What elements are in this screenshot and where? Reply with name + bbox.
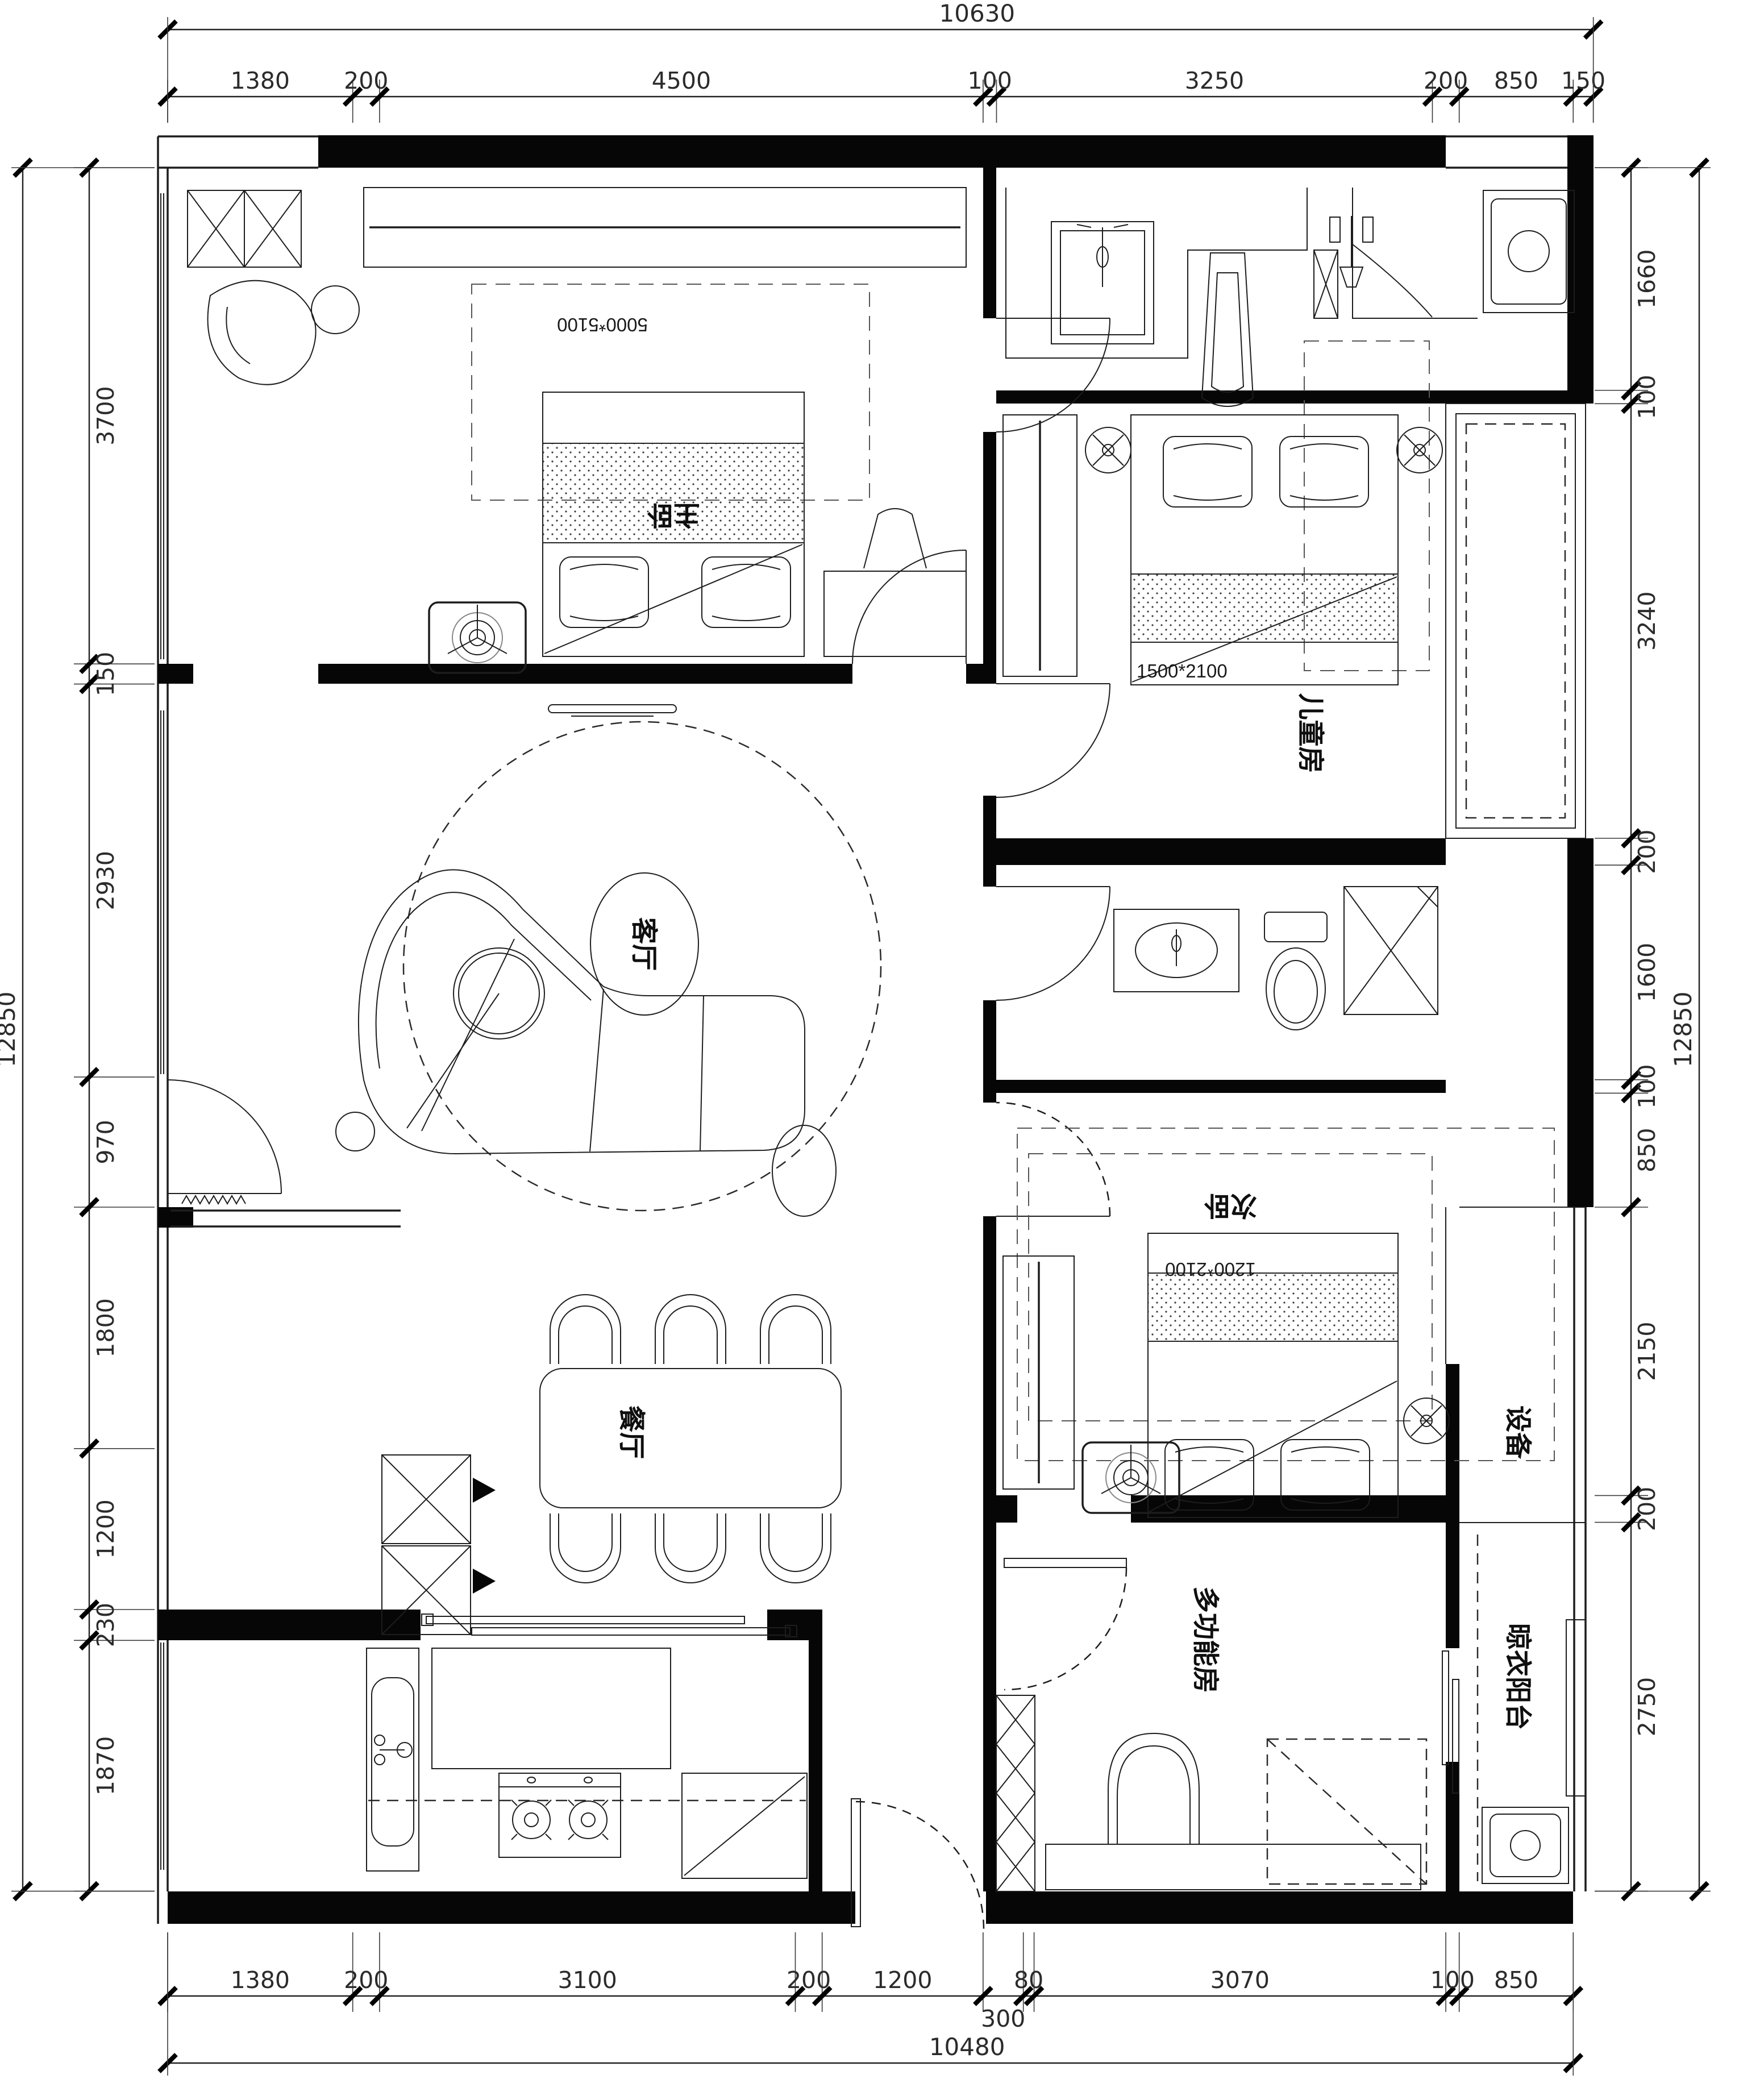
narrow-cabinet [1314, 250, 1338, 318]
kitchen [367, 1648, 807, 1878]
second-bedroom [1003, 1128, 1554, 1517]
door-kids [996, 684, 1110, 797]
balcony-washer [1482, 1807, 1569, 1883]
dimension-label: 2750 [1633, 1677, 1661, 1736]
dimension-label: 12850 [1669, 991, 1697, 1067]
label-multi-room: 多功能房 [1191, 1586, 1221, 1693]
faucet-icon [1077, 224, 1128, 287]
sliding-door-kitchen [422, 1614, 797, 1637]
dimension-label: 2150 [1633, 1322, 1661, 1381]
shower-corner [1353, 188, 1478, 318]
dimension-label: 200 [1633, 829, 1661, 874]
dimension-label: 80 [1014, 1966, 1043, 1994]
dimension-label: 200 [344, 1966, 388, 1994]
dimension-label: 300 [981, 2005, 1025, 2032]
tv-icon [548, 705, 676, 716]
dimension-label: 100 [1430, 1966, 1475, 1994]
door-entry [851, 1799, 984, 1929]
dimension-label: 2930 [92, 851, 119, 910]
kitchen-sink [372, 1678, 414, 1846]
door-master [852, 550, 966, 664]
dimension-label: 200 [1633, 1487, 1661, 1531]
dimension-label: 10480 [929, 2033, 1005, 2061]
label-balcony: 晾衣阳台 [1503, 1623, 1533, 1730]
dimension-label: 850 [1633, 1128, 1661, 1172]
floorplan-sheet: 主卧 5000*5100 儿童房 1500*2100 客厅 次卧 1200*21… [0, 0, 1764, 2100]
master-desk [824, 509, 966, 656]
kids-bed [1131, 415, 1398, 685]
door-multi [1004, 1558, 1126, 1690]
dimension-label: 3100 [558, 1966, 617, 1994]
dimension-label: 850 [1494, 1966, 1538, 1994]
faucet-icon-2 [1172, 929, 1181, 966]
dimension-label: 1870 [92, 1736, 119, 1795]
multi-desk [1046, 1733, 1421, 1890]
drying-rail [1566, 1620, 1586, 1796]
bathroom-1 [1006, 188, 1574, 406]
master-bedroom [188, 188, 966, 716]
walls [158, 135, 1594, 1924]
living-window-band [170, 1196, 401, 1226]
dimension-label: 200 [344, 67, 388, 94]
dining-table [540, 1369, 841, 1508]
pedestal-basin [1202, 253, 1253, 406]
label-kids-bed-size: 1500*2100 [1137, 660, 1228, 681]
dimension-label: 1660 [1633, 249, 1661, 309]
dimension-label: 3070 [1210, 1966, 1270, 1994]
dining-chair [760, 1513, 831, 1583]
multi-room [996, 1695, 1426, 1891]
pendant-light-icon [1330, 216, 1373, 287]
armchair-corner [208, 281, 316, 385]
dining-chair [550, 1513, 621, 1583]
master-fan-icon [429, 602, 526, 673]
stove-icon [499, 1773, 621, 1857]
dimension-label: 1200 [873, 1966, 932, 1994]
ottoman [772, 1125, 836, 1216]
dimension-label: 1800 [92, 1298, 119, 1357]
dining-area [382, 1295, 841, 1635]
door-bath2 [996, 887, 1110, 1000]
label-living-room: 客厅 [629, 917, 659, 971]
dimension-label: 1380 [231, 67, 290, 94]
sofa [359, 870, 805, 1154]
kids-nightstand-left [1085, 427, 1131, 473]
dimension-label: 850 [1494, 67, 1538, 94]
bathroom-2 [1114, 887, 1438, 1030]
dimension-label: 970 [92, 1120, 119, 1164]
corner-side-table [311, 286, 359, 334]
master-wardrobe [364, 188, 966, 267]
label-equipment: 设备 [1503, 1405, 1533, 1459]
dimension-label: 200 [787, 1966, 831, 1994]
living-room [336, 722, 881, 1216]
kitchen-island [432, 1648, 671, 1769]
tray-table [407, 948, 544, 1128]
dimension-label: 10630 [939, 0, 1016, 27]
kids-wardrobe [1003, 415, 1077, 676]
dining-chair [655, 1295, 726, 1364]
dimension-label: 3700 [92, 386, 119, 445]
toilet-icon [1264, 912, 1327, 1030]
sideboard [382, 1455, 496, 1635]
dining-chair [655, 1513, 726, 1583]
dimension-label: 1200 [92, 1499, 119, 1558]
dining-chair [760, 1295, 831, 1364]
washing-machine [1483, 190, 1574, 313]
dimension-label: 12850 [0, 991, 20, 1067]
dimension-label: 1600 [1633, 943, 1661, 1002]
dimension-label: 100 [1633, 375, 1661, 419]
multi-future-wardrobe [1267, 1739, 1426, 1884]
label-kids-room: 儿童房 [1296, 693, 1326, 774]
dimension-label: 4500 [652, 67, 711, 94]
dining-chair [550, 1295, 621, 1364]
label-master-bedroom: 主卧 [647, 500, 700, 530]
dimension-label: 230 [92, 1603, 119, 1647]
door-second-bedroom [996, 1103, 1110, 1216]
dimension-label: 100 [968, 67, 1012, 94]
dimension-label: 3240 [1633, 592, 1661, 651]
dimension-label: 100 [1633, 1064, 1661, 1108]
dimension-label: 200 [1424, 67, 1468, 94]
multi-cabinet-strip [996, 1695, 1035, 1891]
shoe-cabinet-icon [188, 190, 301, 267]
dimension-label: 150 [1561, 67, 1605, 94]
label-second-bed-size: 1200*2100 [1165, 1259, 1256, 1280]
bay-window [1446, 404, 1586, 838]
side-table-small [336, 1112, 375, 1151]
dimension-label: 3250 [1185, 67, 1244, 94]
kids-nightstand-right [1397, 427, 1442, 473]
dimension-label: 1380 [231, 1966, 290, 1994]
label-second-bedroom: 次卧 [1204, 1191, 1257, 1221]
washer-2 [1344, 887, 1438, 1014]
door-living-balcony [168, 1080, 281, 1194]
corner-unit [682, 1773, 807, 1878]
floorplan-drawing: 主卧 5000*5100 儿童房 1500*2100 客厅 次卧 1200*21… [0, 0, 1764, 2100]
second-wardrobe [1003, 1256, 1074, 1489]
kids-room [1003, 216, 1442, 685]
dimension-label: 150 [92, 652, 119, 696]
label-dining: 餐厅 [617, 1405, 647, 1459]
label-master-size: 5000*5100 [557, 314, 648, 335]
